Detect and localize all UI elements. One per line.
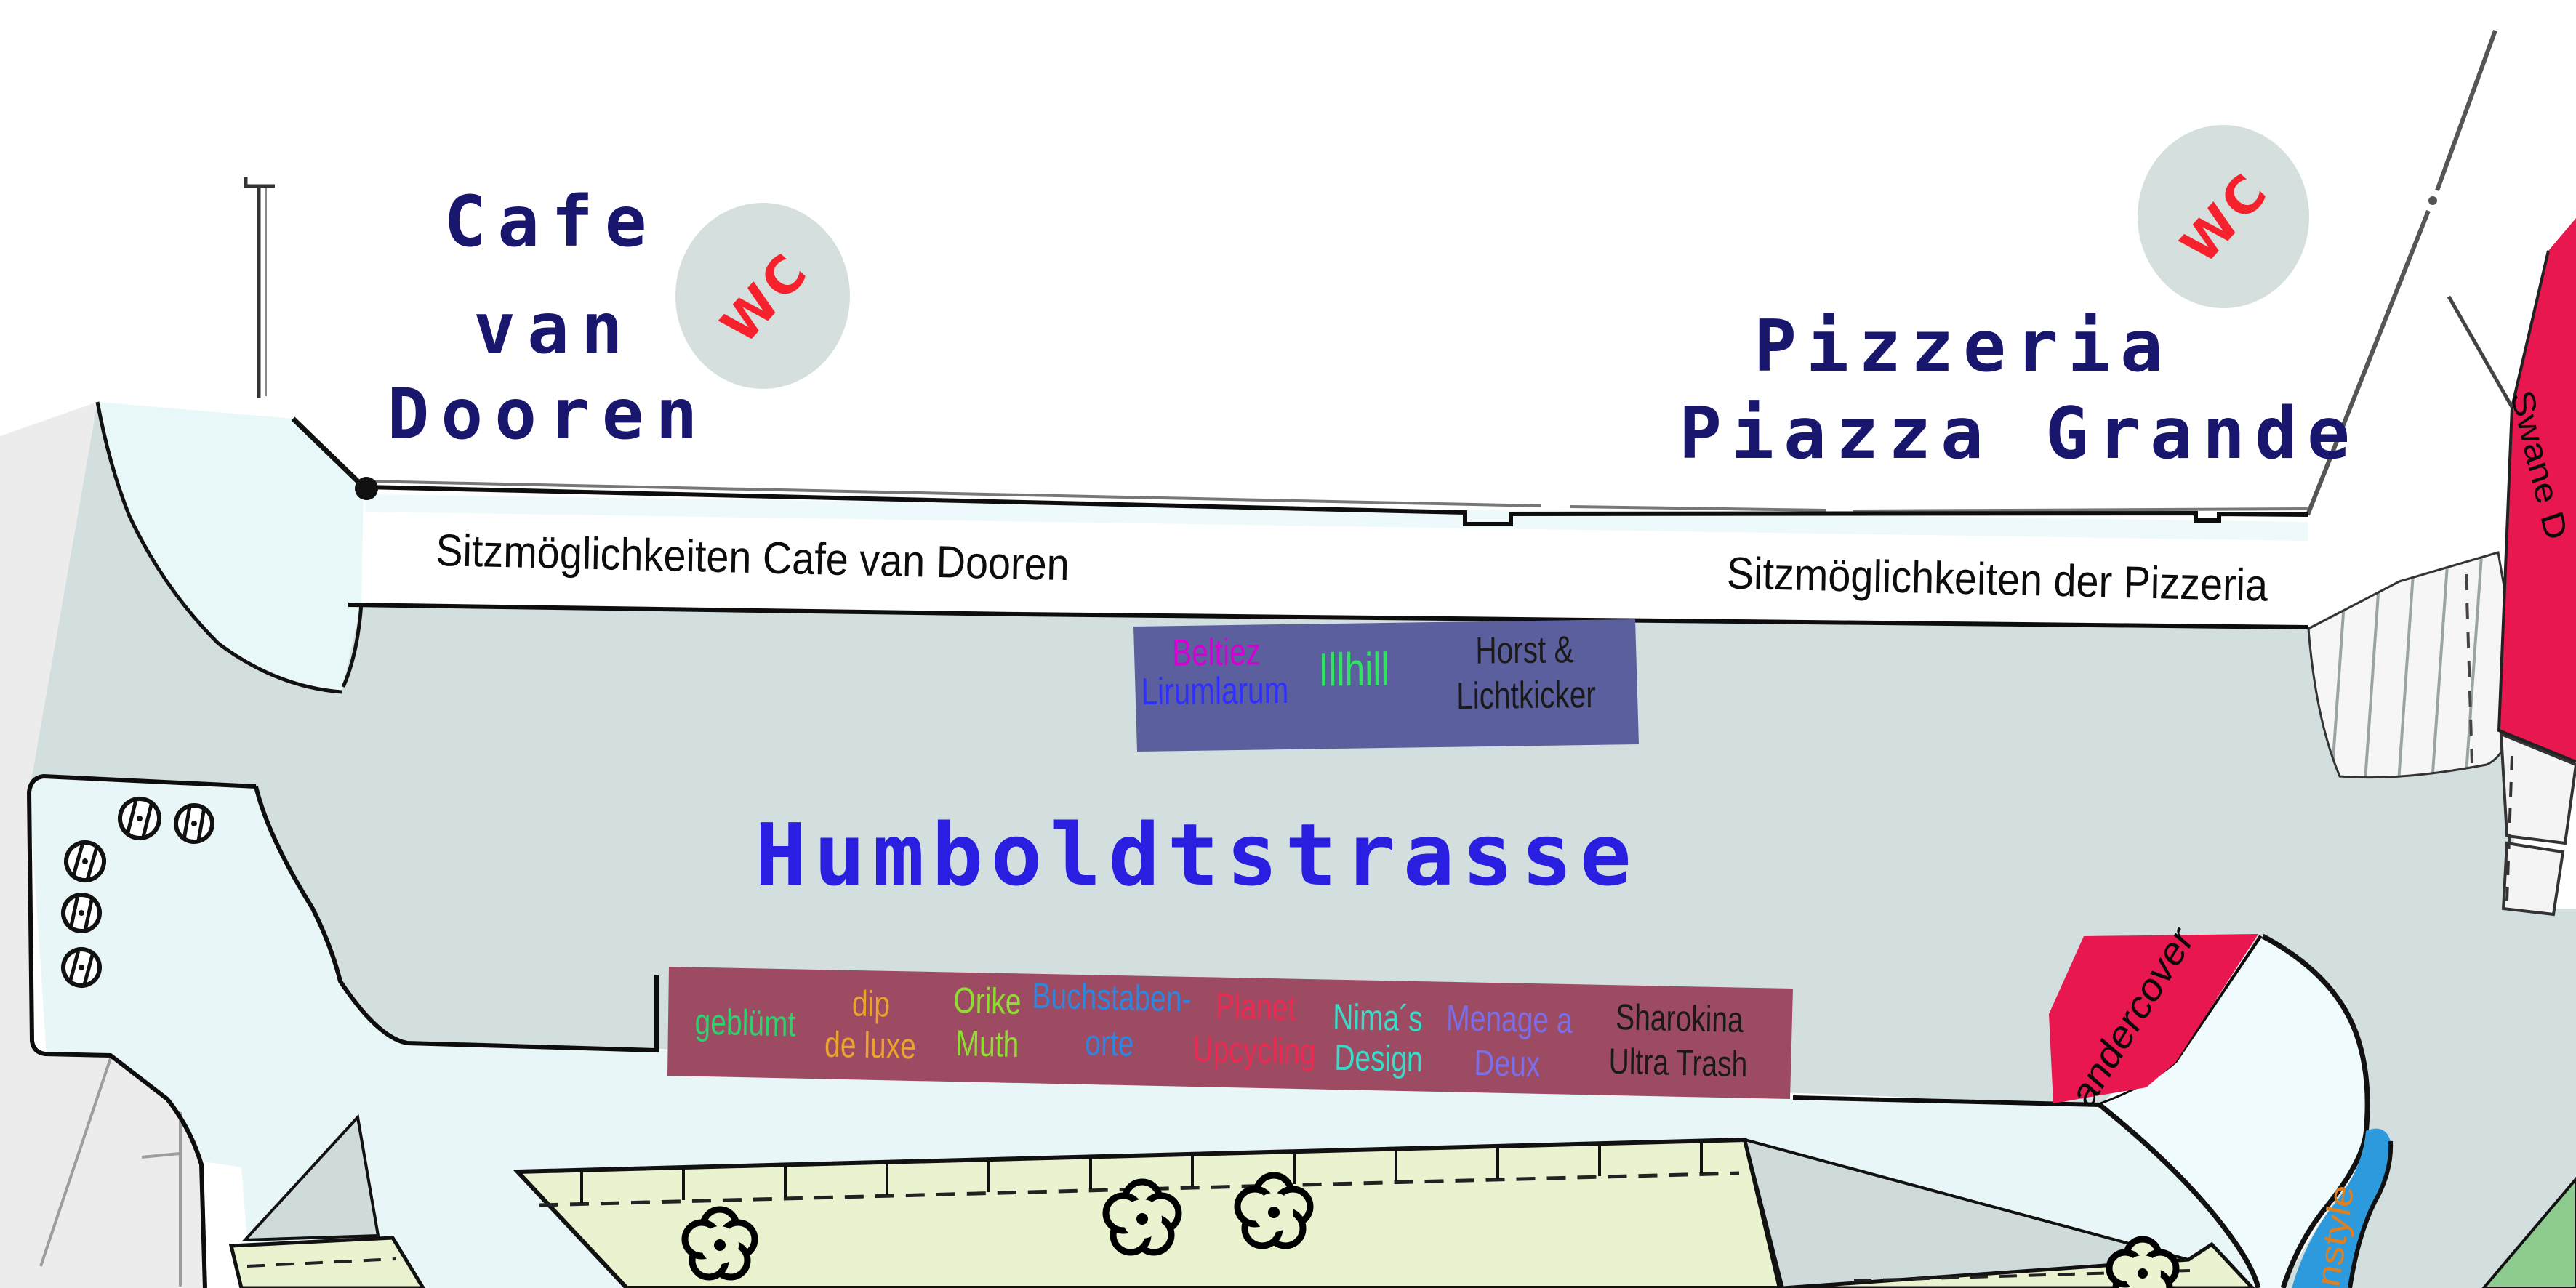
vendor-beltiez: Beltiez	[1172, 633, 1261, 672]
vendor-horst-line2: Lichtkicker	[1456, 676, 1596, 715]
vendor-orike-line1: Orike	[953, 982, 1022, 1020]
vendor-buchstabenorte-line1: Buchstaben-	[1032, 978, 1192, 1018]
vendor-sharokina-line1: Sharokina	[1616, 999, 1744, 1038]
vendor-buchstabenorte-line2: orte	[1085, 1024, 1134, 1061]
boundary-dot	[2428, 196, 2437, 205]
vendor-planet-line1: Planet	[1215, 988, 1296, 1026]
vendor-sharokina-line2: Ultra Trash	[1608, 1043, 1747, 1082]
vendor-dip-line2: de luxe	[824, 1026, 916, 1065]
cafe-name-line2: van	[473, 294, 634, 363]
vendor-orike-line2: Muth	[955, 1025, 1019, 1063]
vendor-illhill: Illhill	[1318, 645, 1389, 693]
vendor-nima-line1: Nima´s	[1333, 999, 1423, 1037]
festival-map: Cafe van Dooren Pizzeria Piazza Grande W…	[0, 0, 2576, 1288]
vendor-gebluemt: geblümt	[694, 1003, 795, 1042]
vendor-lirumlarum: Lirumlarum	[1141, 672, 1288, 711]
parcel	[2503, 843, 2563, 914]
vendor-menage-line1: Menage a	[1446, 999, 1573, 1039]
cafe-name-line3: Dooren	[388, 379, 710, 449]
cafe-name-line1: Cafe	[444, 187, 658, 257]
vendor-nima-line2: Design	[1334, 1039, 1423, 1078]
seating-label-pizzeria: Sitzmöglichkeiten der Pizzeria	[1726, 551, 2268, 608]
vendor-horst-line1: Horst &	[1475, 631, 1574, 670]
pizzeria-name-line2: Piazza Grande	[1679, 398, 2359, 470]
pizzeria-name-line1: Pizzeria	[1754, 311, 2172, 382]
map-canvas	[0, 0, 2576, 1288]
vendor-menage-line2: Deux	[1474, 1045, 1541, 1082]
street-name-label: Humboldtstrasse	[755, 812, 1639, 898]
vendor-dip-line1: dip	[852, 985, 891, 1022]
vendor-planet-line2: Upcycling	[1192, 1031, 1316, 1070]
planter-small-bed	[231, 1238, 423, 1288]
